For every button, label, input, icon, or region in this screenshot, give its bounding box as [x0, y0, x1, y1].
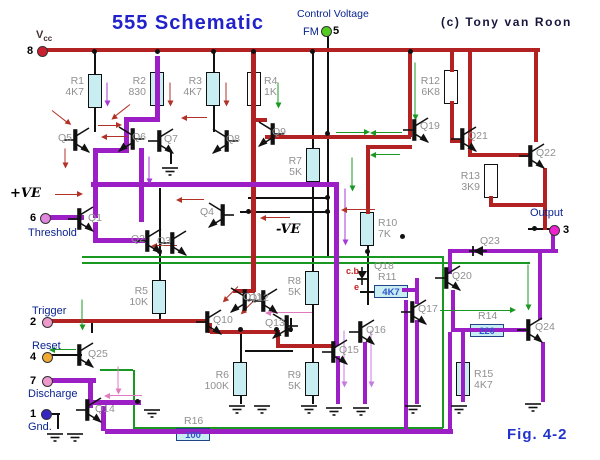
junction-dot [325, 131, 330, 136]
junction-dot [365, 249, 370, 254]
junction-dot [92, 49, 97, 54]
ground-symbol [300, 402, 318, 420]
ground-symbol [161, 164, 179, 182]
pin-7-number: 7 [30, 375, 36, 387]
flow-arrow-icon [372, 132, 402, 133]
wire-segment [334, 182, 339, 346]
wire-segment [133, 370, 135, 427]
wire-segment [312, 53, 314, 148]
pin-6-label: Threshold [28, 227, 77, 239]
flow-arrow-icon [178, 199, 204, 200]
resistor-r13-label: R133K9 [461, 171, 480, 192]
pin-1-label: Gnd. [28, 421, 52, 433]
flow-arrow-icon [262, 217, 290, 218]
flow-arrow-icon [183, 117, 207, 118]
resistor-r12-body [444, 70, 458, 104]
pin-3-dot [549, 225, 560, 236]
wire-segment [541, 342, 545, 402]
wire-segment [461, 332, 465, 402]
ground-symbol [143, 406, 161, 424]
pin-5-dot [321, 26, 332, 37]
flow-arrow-icon [440, 310, 514, 311]
junction-dot [211, 49, 216, 54]
figure-label: Fig. 4-2 [507, 426, 568, 443]
junction-dot [288, 327, 293, 332]
transistor-q3-label: Q3 [157, 236, 171, 247]
wire-segment [155, 56, 160, 120]
junction-dot [238, 327, 243, 332]
wire-segment [245, 350, 293, 352]
flow-arrow-icon [415, 63, 416, 119]
transistor-q24-label: Q24 [535, 322, 555, 333]
wire-segment [105, 429, 453, 434]
transistor-q8-label: Q8 [226, 134, 240, 145]
transistor-q17-label: Q17 [418, 304, 438, 315]
transistor-q14-label: Q14 [95, 404, 115, 415]
resistor-r8-body [305, 271, 319, 305]
junction-dot [400, 234, 405, 239]
flow-arrow-icon [278, 83, 279, 107]
ground-symbol [325, 404, 343, 422]
plus-ve-label: +VE [10, 186, 41, 201]
wire-segment [124, 117, 160, 122]
resistor-r7-label: R75K [289, 156, 302, 177]
transistor-q10-label: Q10 [213, 315, 233, 326]
resistor-r5-label: R510K [129, 286, 148, 307]
wire-segment [48, 319, 208, 323]
resistor-r8-label: R85K [288, 276, 301, 297]
minus-ve-label: -VE [276, 222, 300, 237]
resistor-r15-label: R154K7 [474, 369, 493, 390]
resistor-r1-body [88, 74, 102, 108]
wire-segment [312, 182, 314, 271]
resistor-r14-label: R14 [478, 311, 497, 322]
resistor-r11-label: R11 [378, 272, 396, 283]
wire-segment [534, 52, 538, 142]
pin-5-number: 5 [333, 25, 339, 37]
transistor-q9-label: Q9 [272, 127, 286, 138]
wire-segment [450, 52, 454, 72]
junction-dot [408, 49, 413, 54]
resistor-r4-label: R41K [264, 76, 277, 97]
wire-segment [57, 413, 59, 429]
transistor-q22-label: Q22 [536, 148, 556, 159]
resistor-r6-body [233, 362, 247, 396]
ground-symbol [228, 402, 246, 420]
wire-segment [91, 182, 339, 187]
pin-4-label: Reset [32, 340, 61, 352]
copyright: (c) Tony van Roon [441, 15, 572, 29]
schematic-canvas: 555 Schematic (c) Tony van Roon Fig. 4-2… [0, 0, 600, 460]
flow-arrow-icon [345, 189, 346, 244]
flow-arrow-icon [372, 154, 400, 155]
resistor-r16-label: R16 [184, 416, 203, 427]
resistor-r14-value: 220 [470, 326, 504, 337]
transistor-q21-label: Q21 [468, 131, 488, 142]
flow-arrow-icon [170, 83, 171, 105]
cb-label: c.b [346, 266, 359, 276]
pin-7-label: Discharge [28, 388, 78, 400]
wire-segment [100, 369, 133, 371]
pin-7-dot [42, 376, 53, 387]
pin-6-number: 6 [30, 212, 36, 224]
transistor-q13-label: Q13 [265, 318, 285, 329]
transistor-q2-label: Q2 [131, 234, 145, 245]
wire-segment [312, 305, 314, 362]
control-voltage-label: Control Voltage [297, 8, 369, 20]
ground-symbol [66, 430, 84, 448]
transistor-q1-label: Q1 [88, 213, 102, 224]
transistor-q7-label: Q7 [164, 134, 178, 145]
wire-segment [94, 108, 96, 132]
resistor-r11-value: 4K7 [374, 287, 408, 298]
junction-dot [246, 209, 251, 214]
ground-symbol [524, 400, 542, 418]
junction-dot [251, 49, 256, 54]
wire-segment [327, 36, 329, 258]
pin-4-dot [42, 352, 53, 363]
pin-2-number: 2 [30, 316, 36, 328]
resistor-r1-label: R14K7 [65, 76, 84, 97]
pin-8-label: Vcc [36, 29, 52, 43]
resistor-r12-label: R126K8 [421, 76, 440, 97]
pin-1-dot [41, 409, 52, 420]
pin-2-label: Trigger [32, 305, 66, 317]
wire-segment [40, 48, 540, 52]
flow-arrow-icon [118, 367, 119, 393]
resistor-r3-body [206, 72, 220, 106]
junction-dot [155, 49, 160, 54]
transistor-q20-label: Q20 [452, 271, 472, 282]
pin-2-dot [42, 317, 53, 328]
pin-6-dot [40, 213, 51, 224]
resistor-r2-label: R2830 [128, 76, 146, 97]
flow-arrow-icon [82, 300, 83, 329]
diode-q23-label: Q23 [480, 236, 500, 247]
flow-arrow-icon [107, 83, 108, 105]
wire-segment [538, 253, 542, 320]
resistor-r10-label: R107K [378, 218, 397, 239]
ground-symbol [450, 402, 468, 420]
flow-arrow-icon [352, 158, 353, 190]
flow-arrow-icon [343, 209, 375, 210]
junction-dot [325, 209, 330, 214]
resistor-r3-label: R34K7 [183, 76, 202, 97]
wire-segment [240, 332, 242, 362]
resistor-r5-body [152, 280, 166, 314]
flow-arrow-icon [226, 83, 227, 105]
transistor-q16-label: Q16 [366, 325, 386, 336]
wire-segment [251, 52, 256, 292]
wire-segment [415, 320, 419, 404]
pin-3-label: Output [530, 207, 563, 219]
flow-arrow-icon [528, 265, 529, 309]
junction-dot [532, 226, 537, 231]
ground-symbol [253, 402, 271, 420]
transistor-q15-label: Q15 [339, 345, 359, 356]
transistor-q6-label: Q6 [132, 132, 146, 143]
pin-1-number: 1 [30, 408, 36, 420]
resistor-r7-body [306, 148, 320, 182]
transistor-q19-label: Q19 [420, 121, 440, 132]
diode-q18-label: Q18 [374, 261, 394, 272]
resistor-r9-label: R95K [288, 370, 301, 391]
flow-arrow-icon [52, 110, 70, 124]
ground-symbol [404, 402, 422, 420]
ground-symbol [352, 404, 370, 422]
wire-segment [265, 135, 411, 139]
flow-arrow-icon [55, 194, 81, 195]
wire-segment [248, 197, 328, 199]
pin-8-number: 8 [27, 45, 33, 57]
pin-5-label: FM [303, 26, 319, 38]
junction-dot [157, 249, 162, 254]
page-title: 555 Schematic [112, 12, 264, 35]
resistor-r13-body [484, 164, 498, 198]
pin-8-dot [37, 46, 48, 57]
resistor-r10-body [360, 212, 374, 246]
junction-dot [325, 195, 330, 200]
transistor-q5-label: Q5 [58, 133, 72, 144]
resistor-r9-body [305, 362, 319, 396]
resistor-r16-value: 100 [176, 430, 210, 441]
junction-dot [310, 49, 315, 54]
flow-arrow-icon [106, 395, 142, 396]
wire-segment [360, 291, 374, 293]
junction-dot [135, 399, 140, 404]
wire-segment [94, 52, 96, 74]
wire-segment [213, 52, 215, 72]
pin-3-number: 3 [563, 224, 569, 236]
e-label: e [354, 282, 359, 292]
transistor-q4-label: Q4 [200, 207, 214, 218]
flow-arrow-icon [336, 132, 368, 133]
transistor-q25-label: Q25 [88, 349, 108, 360]
resistor-r6-label: R6100K [204, 370, 229, 391]
pin-4-number: 4 [30, 351, 36, 363]
transistor-q12-label: Q12 [249, 293, 269, 304]
